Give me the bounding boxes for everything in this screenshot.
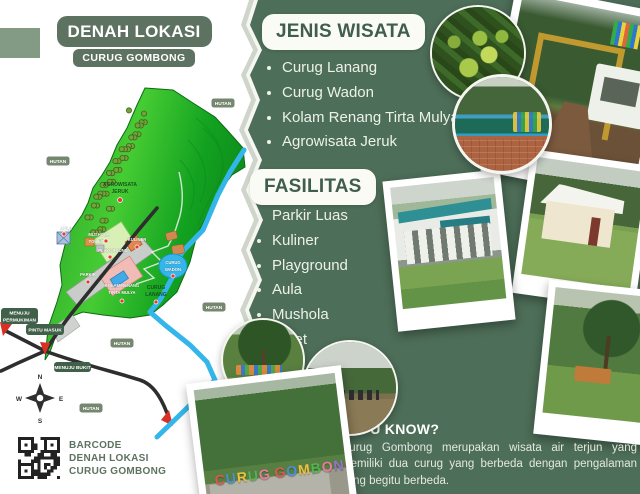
svg-text:PINTU MASUK: PINTU MASUK [28, 328, 62, 334]
svg-text:AGROWISATA: AGROWISATA [103, 182, 137, 188]
hutan-badge: HUTAN [203, 303, 226, 312]
pool-playground-slide [513, 112, 541, 133]
svg-text:HUTAN: HUTAN [114, 341, 131, 347]
pool-scene [455, 77, 549, 171]
svg-text:LANANG: LANANG [145, 292, 166, 298]
decor-rect [0, 28, 40, 58]
svg-text:MENUJU: MENUJU [9, 311, 30, 317]
ticket-kiosk [586, 63, 640, 129]
svg-text:JERUK: JERUK [112, 189, 129, 195]
svg-text:HUTAN: HUTAN [206, 305, 223, 311]
svg-text:N: N [38, 374, 43, 381]
svg-text:HUTAN: HUTAN [83, 406, 100, 412]
svg-text:HUTAN: HUTAN [50, 159, 67, 165]
svg-text:S: S [38, 418, 43, 425]
svg-text:MUSHOLA: MUSHOLA [88, 232, 109, 237]
jenis-wisata-heading: JENIS WISATA [262, 14, 425, 50]
did-u-know-body: Curug Gombong merupakan wisata air terju… [341, 440, 637, 489]
pavilion-scene [390, 177, 506, 309]
hutan-badge: HUTAN [47, 157, 70, 166]
gate-colorful-slats [609, 21, 640, 50]
house-scene [521, 157, 640, 289]
svg-text:TIRTA MULYA: TIRTA MULYA [108, 290, 135, 295]
pintu-masuk-badge: PINTU MASUK [26, 324, 64, 335]
svg-text:TOILET: TOILET [89, 239, 104, 244]
barcode-block: BARCODE DENAH LOKASI CURUG GOMBONG [18, 437, 166, 479]
page-subtitle: CURUG GOMBONG [73, 49, 194, 67]
hutan-badge: HUTAN [111, 339, 134, 348]
barcode-caption-line: CURUG GOMBONG [69, 465, 166, 478]
fasilitas-heading: FASILITAS [250, 169, 376, 205]
menuju-bukit-badge: MENUJU BUKIT [54, 362, 91, 372]
compass-icon: N E S W [16, 374, 64, 425]
barcode-caption-line: BARCODE [69, 439, 166, 452]
svg-text:PERMUKIMAN: PERMUKIMAN [3, 318, 37, 324]
list-item: Kolam Renang Tirta Mulya [282, 108, 462, 128]
page-title: DENAH LOKASI [57, 16, 212, 47]
svg-text:PLAYGROUND: PLAYGROUND [98, 248, 127, 253]
hutan-badge: HUTAN [80, 404, 103, 413]
garden-planter [574, 365, 611, 384]
svg-text:E: E [59, 396, 64, 403]
flyer-canvas: DENAH LOKASI CURUG GOMBONG [0, 0, 640, 494]
list-item: Curug Wadon [282, 83, 462, 103]
svg-text:W: W [16, 396, 23, 403]
house-body [542, 201, 615, 248]
list-item: Agrowisata Jeruk [282, 132, 462, 152]
svg-text:PARKIR: PARKIR [80, 272, 96, 277]
tree-trunk [603, 336, 611, 371]
svg-text:KOLAM RENANG: KOLAM RENANG [105, 283, 140, 288]
svg-text:WADON: WADON [165, 267, 181, 272]
sign-scene: CURUG GOMBONG [194, 373, 351, 494]
menuju-permukiman-badge: MENUJU PERMUKIMAN [1, 308, 38, 324]
svg-text:HUTAN: HUTAN [215, 101, 232, 107]
photo-curug-sign: CURUG GOMBONG [186, 365, 360, 494]
pavilion-columns [404, 223, 492, 265]
jenis-wisata-list: Curug LanangCurug WadonKolam Renang Tirt… [264, 58, 462, 157]
svg-text:AULA: AULA [60, 226, 72, 231]
photo-swimming-pool [452, 74, 552, 174]
svg-text:KULINER: KULINER [128, 237, 147, 242]
garden-scene [542, 287, 640, 423]
qr-code [18, 437, 60, 479]
title-block: DENAH LOKASI CURUG GOMBONG [56, 16, 212, 67]
pool-paving [455, 139, 549, 171]
svg-text:CURUG: CURUG [147, 285, 165, 291]
svg-text:CURUG: CURUG [165, 260, 180, 265]
svg-text:MENUJU BUKIT: MENUJU BUKIT [54, 365, 90, 371]
photo-aula-pavilion [382, 169, 515, 332]
barcode-caption: BARCODE DENAH LOKASI CURUG GOMBONG [69, 437, 166, 478]
hutan-badge: HUTAN [212, 99, 235, 108]
kiosk-window [600, 77, 639, 107]
barcode-caption-line: DENAH LOKASI [69, 452, 166, 465]
